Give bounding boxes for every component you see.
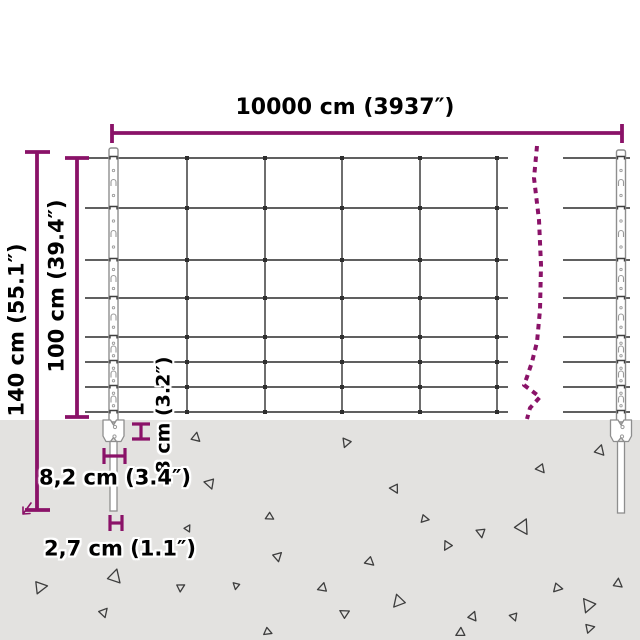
dimension-label-total-height: 140 cm (55.1″) xyxy=(7,243,28,416)
dimension-label-anchor-width: 8,2 cm (3.4″) xyxy=(39,468,191,489)
ground-area xyxy=(0,420,640,640)
break-line xyxy=(524,146,541,419)
fence-dimension-diagram: 10000 cm (3937″) 140 cm (55.1″) 100 cm (… xyxy=(0,0,640,640)
dimension-label-spike-width: 2,7 cm (1.1″) xyxy=(44,539,196,560)
dimension-label-mesh-height: 100 cm (39.4″) xyxy=(47,199,68,372)
dimension-label-width: 10000 cm (3937″) xyxy=(236,97,455,119)
dimension-label-anchor-height: 8 cm (3.2″) xyxy=(155,356,174,473)
